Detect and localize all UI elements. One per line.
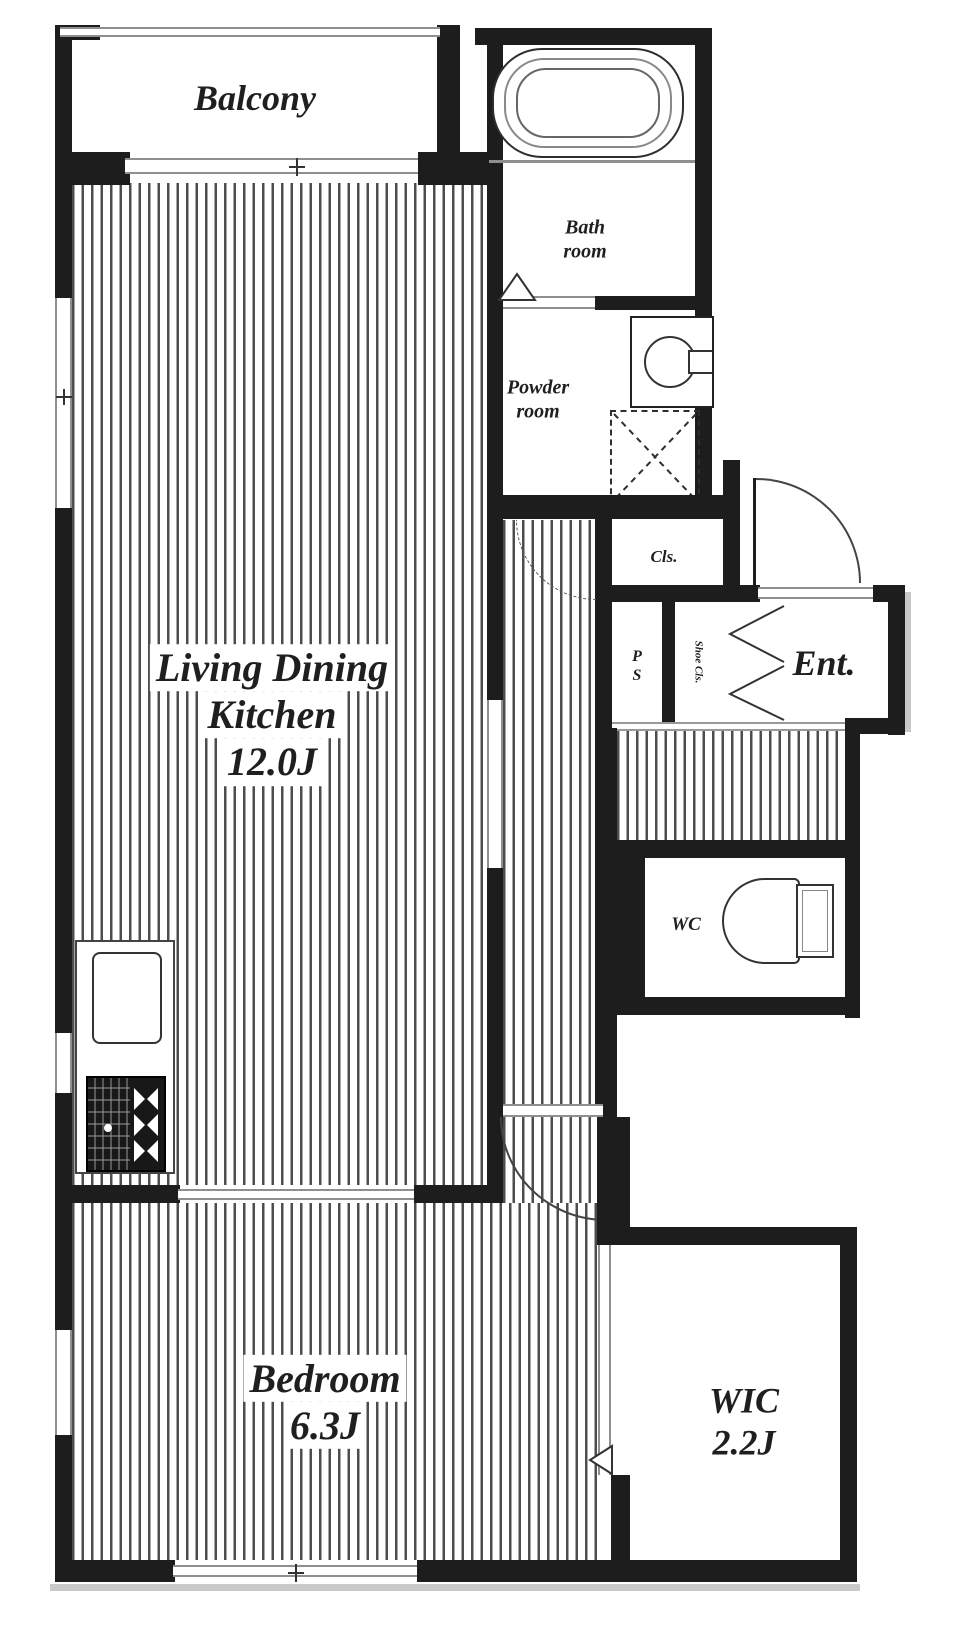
- wall: [417, 1560, 630, 1582]
- washer-pan-cross-icon: [612, 412, 698, 502]
- balcony-railing: [60, 27, 440, 37]
- window: [55, 1330, 72, 1437]
- label-wic: WIC 2.2J: [709, 1380, 779, 1465]
- wall: [723, 460, 740, 590]
- label-entrance: Ent.: [792, 642, 855, 684]
- entrance-door-threshold: [758, 587, 873, 599]
- wall: [55, 183, 72, 300]
- bathtub-basin: [516, 68, 660, 138]
- bedroom-door-threshold: [503, 1104, 603, 1117]
- wall: [888, 585, 905, 735]
- wall-shadow: [905, 592, 911, 732]
- wall: [611, 1227, 857, 1245]
- sink-faucet-icon: [688, 350, 712, 374]
- window-tick: [63, 389, 65, 405]
- toilet-tank-inner: [802, 890, 828, 952]
- label-shoe-closet: Shoe Cls.: [692, 641, 705, 684]
- wall: [475, 28, 712, 45]
- floor-plan: Balcony Bath room Powder room Living Din…: [0, 0, 960, 1649]
- stove-icon: [86, 1076, 166, 1172]
- wall: [840, 1227, 857, 1582]
- wic-door-triangle-icon: [588, 1444, 614, 1476]
- wall: [487, 868, 503, 1186]
- wall: [55, 508, 72, 1038]
- wall: [55, 1093, 72, 1333]
- toilet-bowl-icon: [722, 878, 800, 964]
- wall-shadow: [50, 1584, 860, 1591]
- label-powder-room: Powder room: [507, 376, 569, 423]
- wall: [662, 602, 675, 728]
- window-tick: [289, 166, 305, 168]
- sliding-door-ldk: [487, 700, 503, 870]
- label-ldk: Living Dining Kitchen 12.0J: [150, 644, 394, 786]
- label-wc: WC: [671, 914, 701, 936]
- label-pipe-space: P S: [632, 648, 642, 686]
- kitchen-sink-icon: [92, 952, 162, 1044]
- label-bedroom: Bedroom 6.3J: [243, 1355, 406, 1449]
- wall: [595, 519, 612, 589]
- label-closet: Cls.: [651, 547, 678, 567]
- wall: [55, 1560, 175, 1582]
- wall: [740, 585, 760, 602]
- wall: [617, 840, 860, 858]
- shoe-closet-doors-icon: [720, 602, 786, 724]
- wall: [414, 1185, 503, 1203]
- hall-floor: [617, 728, 845, 840]
- entrance-step: [612, 722, 845, 731]
- wall: [617, 840, 645, 1015]
- corridor-floor: [503, 520, 595, 1117]
- sliding-door-bedroom: [178, 1189, 416, 1200]
- window-tick: [288, 1572, 304, 1574]
- entrance-door-arc: [756, 478, 861, 583]
- wall: [487, 495, 740, 519]
- window: [55, 1033, 72, 1095]
- bath-floor-line: [489, 160, 695, 163]
- bath-door-triangle-icon: [497, 272, 537, 302]
- wall: [617, 997, 860, 1015]
- wall: [597, 1117, 630, 1245]
- label-balcony: Balcony: [194, 77, 316, 119]
- wall: [595, 602, 612, 728]
- window: [125, 158, 423, 174]
- wic-opening: [598, 1245, 611, 1475]
- wall: [55, 152, 130, 185]
- wall: [595, 728, 617, 1117]
- wall: [628, 1560, 857, 1582]
- label-bathroom: Bath room: [563, 216, 606, 263]
- wall: [595, 585, 740, 602]
- wall: [595, 296, 695, 310]
- wall: [845, 718, 860, 1018]
- wall: [55, 1185, 180, 1203]
